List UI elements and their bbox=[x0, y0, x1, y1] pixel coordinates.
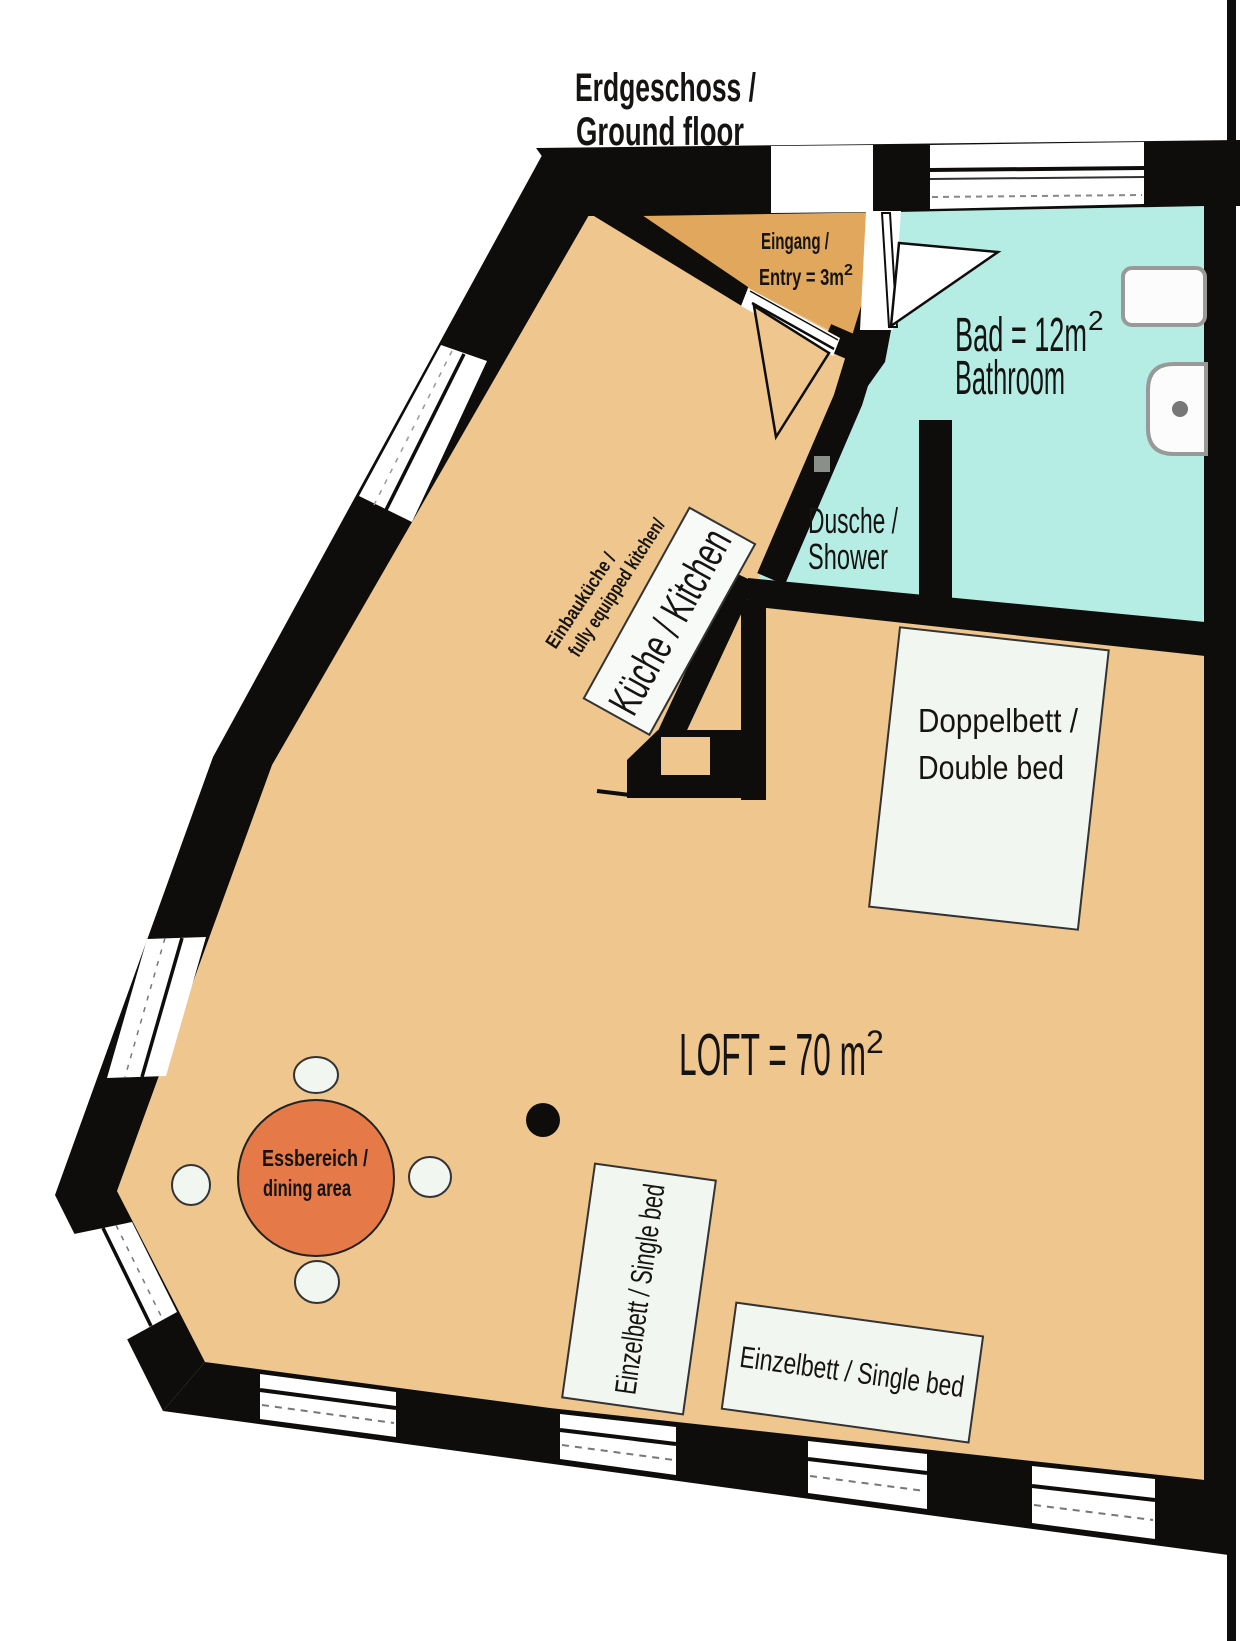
svg-text:Essbereich /: Essbereich / bbox=[262, 1145, 368, 1171]
svg-text:Double bed: Double bed bbox=[918, 749, 1064, 786]
svg-text:Entry = 3m: Entry = 3m bbox=[759, 264, 844, 290]
svg-text:2: 2 bbox=[866, 1024, 884, 1060]
svg-text:LOFT = 70 m: LOFT = 70 m bbox=[679, 1022, 866, 1088]
svg-text:Ground floor: Ground floor bbox=[576, 110, 744, 154]
svg-text:Shower: Shower bbox=[808, 536, 888, 577]
svg-text:dining area: dining area bbox=[263, 1175, 351, 1201]
svg-text:Bathroom: Bathroom bbox=[955, 352, 1065, 405]
svg-text:2: 2 bbox=[844, 262, 853, 279]
svg-text:Eingang /: Eingang / bbox=[761, 228, 829, 254]
svg-text:Erdgeschoss /: Erdgeschoss / bbox=[575, 66, 756, 110]
svg-text:Dusche /: Dusche / bbox=[808, 500, 898, 541]
svg-text:2: 2 bbox=[1088, 305, 1104, 336]
svg-text:Doppelbett /: Doppelbett / bbox=[918, 702, 1079, 739]
